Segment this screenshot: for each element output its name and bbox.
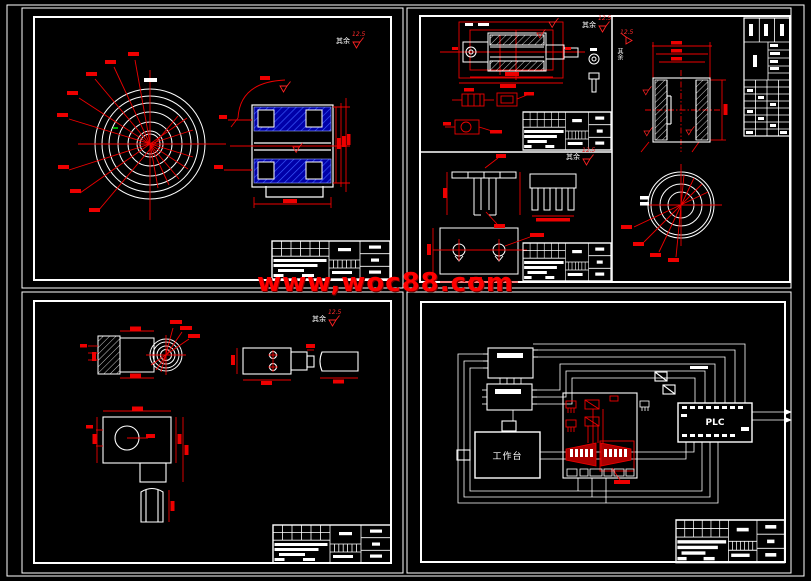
roughness-value-q3: 12.5 xyxy=(328,310,341,316)
wheel-section-view xyxy=(214,76,351,208)
bushing-drawing xyxy=(621,18,790,262)
wheel-front-view xyxy=(57,52,226,220)
title-block-q3 xyxy=(273,525,391,563)
title-block-q2a xyxy=(523,112,611,150)
surface-note-q2b: 其余 xyxy=(566,154,580,161)
plc-box-label: PLC xyxy=(678,403,752,442)
surface-note-q1: 其余 xyxy=(336,38,350,45)
cad-multi-sheet-view: www,woc88.com PLC 工作台 其余 12.5 其余 12.5 其余… xyxy=(0,0,811,581)
roughness-value-q1: 12.5 xyxy=(352,32,365,38)
roughness-value-q2a: 12.5 xyxy=(598,16,611,22)
bracket-parts-drawing xyxy=(80,320,358,522)
title-block-q4 xyxy=(676,520,785,563)
surface-note-q2c: 其余 xyxy=(616,48,622,60)
surface-note-q3: 其余 xyxy=(312,316,326,323)
assembly-drawing xyxy=(440,18,599,134)
title-block-q2b xyxy=(523,243,611,281)
workbench-box-label: 工作台 xyxy=(475,432,540,478)
watermark: www,woc88.com xyxy=(257,270,514,296)
surface-note-q2a: 其余 xyxy=(582,22,596,29)
roughness-value-q2b: 12.5 xyxy=(582,148,595,154)
roughness-value-q2c: 12.5 xyxy=(620,30,633,36)
